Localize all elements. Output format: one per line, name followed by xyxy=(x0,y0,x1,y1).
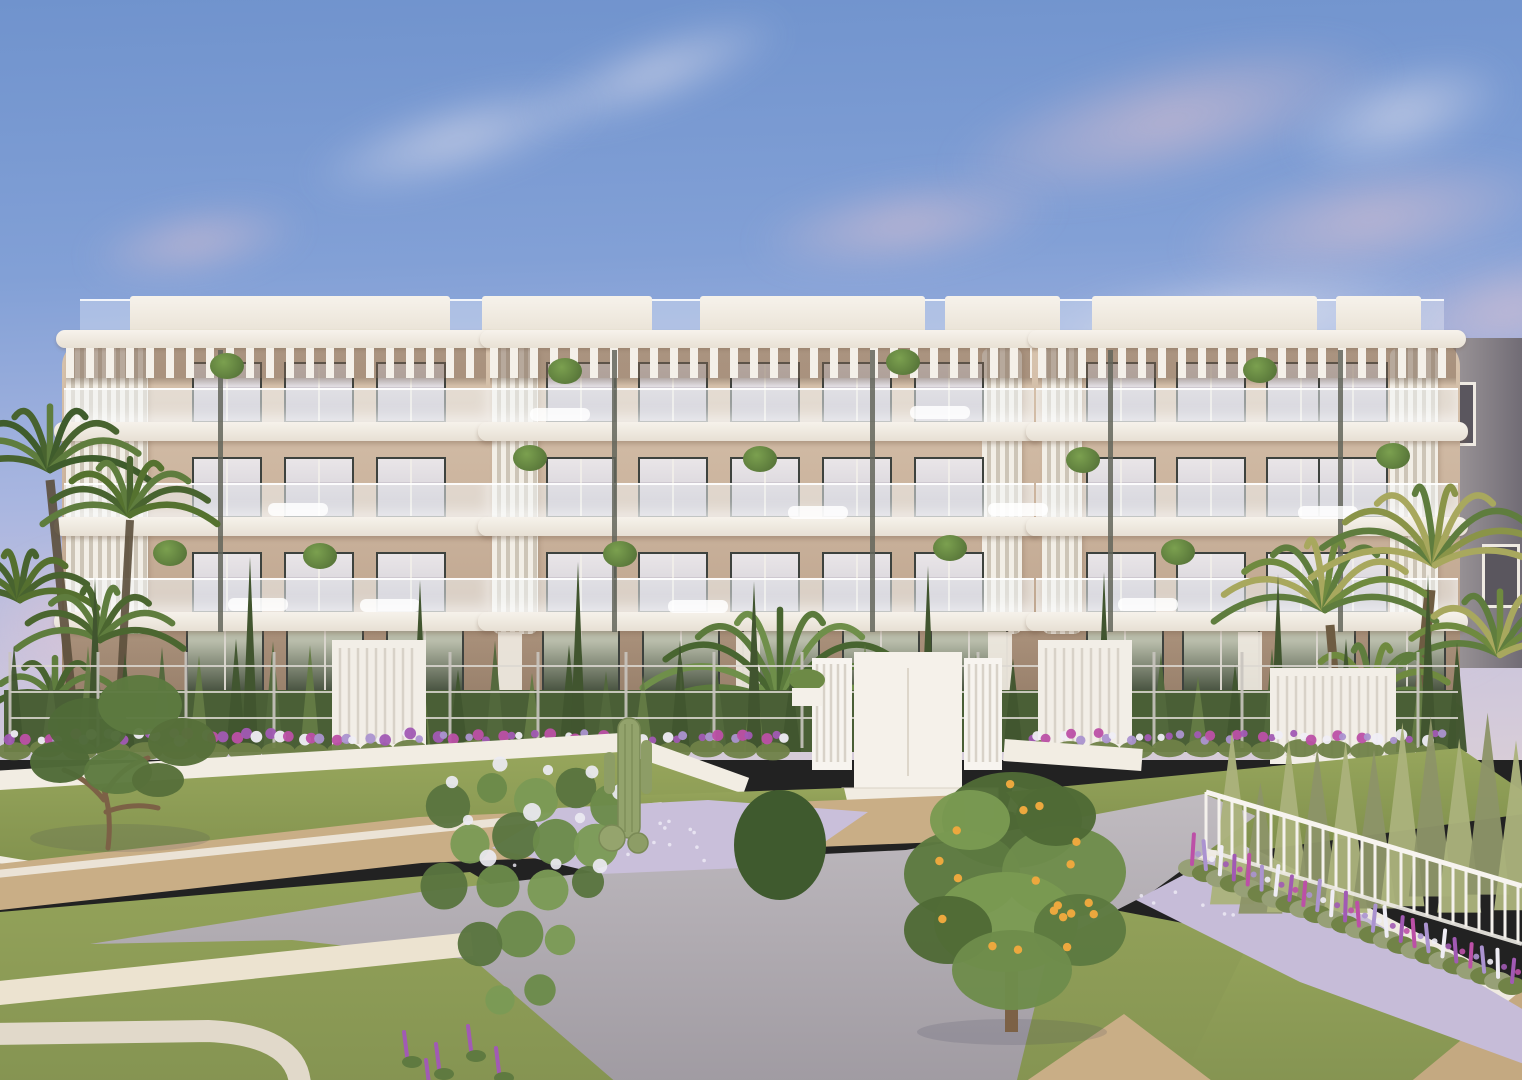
flower-cluster xyxy=(217,731,228,742)
bed-flower-dot xyxy=(1418,933,1424,939)
white-bush-foliage xyxy=(524,974,555,1005)
flower-foliage xyxy=(723,741,757,759)
flower-cluster xyxy=(779,733,789,743)
white-bush-foliage xyxy=(458,922,503,967)
citrus-fruit xyxy=(1085,899,1093,907)
bottom-flower-foliage xyxy=(434,1068,454,1080)
palm-frond-right xyxy=(1214,597,1325,622)
flower-cluster xyxy=(1094,728,1104,738)
bed-flower-dot xyxy=(1251,872,1257,878)
white-bush-flower xyxy=(446,776,458,788)
bed-flower-dot xyxy=(1501,964,1507,970)
bed-flower-spike xyxy=(1455,939,1457,961)
flower-cluster xyxy=(1258,732,1268,742)
bed-flower-spike xyxy=(1248,855,1250,884)
flower-foliage xyxy=(1251,742,1285,760)
white-bush-flower xyxy=(463,815,473,825)
bed-flower-spike xyxy=(1303,883,1305,906)
bed-flower-spike xyxy=(1413,920,1415,946)
flower-cluster xyxy=(440,731,448,739)
flower-cluster xyxy=(1339,733,1346,740)
flower-cluster xyxy=(712,730,723,741)
bed-flower-spike xyxy=(1426,925,1429,952)
bed-flower-spike xyxy=(1512,960,1514,982)
gate-planter-plant xyxy=(789,669,825,691)
flower-cluster xyxy=(473,729,484,740)
bed-flower-dot xyxy=(1473,954,1479,960)
flower-cluster xyxy=(1194,731,1201,738)
bed-flower-dot xyxy=(1320,897,1326,903)
flower-cluster xyxy=(1032,731,1042,741)
gravel-speckle xyxy=(692,831,696,835)
gravel-speckle xyxy=(688,828,692,832)
gravel-speckle xyxy=(667,820,671,824)
flower-cluster xyxy=(1323,735,1332,744)
gate-planter-box xyxy=(792,688,822,706)
gravel-speckle xyxy=(626,853,630,857)
left-tree-foliage xyxy=(148,718,216,766)
flower-cluster xyxy=(283,731,294,742)
palm-frond-left xyxy=(100,630,183,648)
flower-cluster xyxy=(531,730,539,738)
flower-cluster xyxy=(508,732,516,740)
white-bush-flower xyxy=(550,858,561,869)
flower-cluster xyxy=(20,734,31,745)
planter-wall-right xyxy=(1004,750,1142,760)
flower-cluster xyxy=(1127,735,1136,744)
tree-shadow xyxy=(30,824,210,852)
citrus-fruit xyxy=(1066,860,1074,868)
flower-cluster xyxy=(699,734,707,742)
flower-cluster xyxy=(1371,733,1383,745)
flower-cluster xyxy=(11,730,19,738)
citrus-fruit xyxy=(1035,802,1043,810)
bed-flower-spike xyxy=(1204,841,1206,869)
white-bush-foliage xyxy=(485,985,514,1014)
citrus-foliage xyxy=(1016,786,1096,846)
left-tree-foliage xyxy=(132,763,184,797)
bed-flower-dot xyxy=(1334,902,1340,908)
barrel-cactus xyxy=(628,833,648,853)
flower-foliage xyxy=(1152,739,1186,757)
bed-flower-spike xyxy=(1234,856,1235,880)
flower-cluster xyxy=(1076,736,1085,745)
flower-cluster xyxy=(314,733,324,743)
gravel-speckle xyxy=(663,826,667,830)
bed-flower-dot xyxy=(1195,851,1201,857)
gravel-speckle xyxy=(658,822,662,826)
bed-flower-spike xyxy=(1317,881,1320,911)
white-bush-foliage xyxy=(533,819,579,865)
bed-flower-spike xyxy=(1331,892,1332,916)
cactus-arm xyxy=(604,752,615,794)
citrus-fruit xyxy=(1063,943,1071,951)
flower-cluster xyxy=(1205,731,1215,741)
flower-cluster xyxy=(365,733,375,743)
flower-cluster xyxy=(404,728,416,740)
flower-cluster xyxy=(761,733,772,744)
flower-cluster xyxy=(1306,735,1317,746)
white-bush-foliage xyxy=(421,863,468,910)
bed-flower-spike xyxy=(1482,947,1484,971)
architectural-render-scene: New-build apartment complex with landsca… xyxy=(0,0,1522,1080)
gravel-speckle xyxy=(1152,901,1156,905)
citrus-foliage xyxy=(952,930,1072,1010)
citrus-fruit xyxy=(953,826,961,834)
white-bush-foliage xyxy=(477,865,520,908)
white-bush-foliage xyxy=(497,911,544,958)
flower-cluster xyxy=(465,733,473,741)
bed-flower-dot xyxy=(1362,913,1368,919)
bed-flower-dot xyxy=(1292,887,1298,893)
gravel-speckle xyxy=(1231,913,1235,917)
bed-flower-dot xyxy=(1223,861,1229,867)
bed-flower-spike xyxy=(1373,906,1376,931)
flower-cluster xyxy=(1157,734,1164,741)
left-tree-foliage xyxy=(30,741,90,783)
citrus-fruit xyxy=(938,915,946,923)
citrus-fruit xyxy=(954,874,962,882)
flower-cluster xyxy=(251,731,263,743)
flower-cluster xyxy=(1390,737,1397,744)
flower-cluster xyxy=(348,736,356,744)
citrus-fruit xyxy=(1090,910,1098,918)
bed-flower-spike xyxy=(1442,930,1445,956)
bottom-flower-foliage xyxy=(466,1050,486,1062)
saguaro-cactus xyxy=(618,718,640,838)
white-bush-flower xyxy=(523,803,541,821)
gravel-speckle xyxy=(1201,903,1205,907)
flower-cluster xyxy=(1166,732,1173,739)
bed-flower-dot xyxy=(1390,923,1396,929)
white-bush-flower xyxy=(543,765,553,775)
white-bush-flower xyxy=(492,756,507,771)
gravel-speckle xyxy=(695,845,699,849)
flower-cluster xyxy=(1144,734,1151,741)
citrus-fruit xyxy=(935,857,943,865)
gravel-speckle xyxy=(1174,890,1178,894)
gravel-speckle xyxy=(513,863,517,867)
bed-flower-dot xyxy=(1306,892,1312,898)
white-bush-foliage xyxy=(477,773,507,803)
flower-cluster xyxy=(1232,730,1242,740)
barrel-cactus xyxy=(599,825,625,851)
flower-cluster xyxy=(515,732,522,739)
tall-cypress xyxy=(570,562,586,752)
citrus-fruit xyxy=(1067,909,1075,917)
flower-cluster xyxy=(415,735,423,743)
palm-frond-right xyxy=(1325,597,1436,622)
flower-foliage xyxy=(756,742,790,760)
white-bush-foliage xyxy=(528,870,569,911)
white-bush-flower xyxy=(479,849,496,866)
white-bush-foliage xyxy=(545,925,575,955)
palm-frond-left xyxy=(130,505,217,524)
garden-foreground xyxy=(0,0,1522,1080)
palm-frond-left xyxy=(17,630,100,648)
bed-flower-dot xyxy=(1376,918,1382,924)
flower-cluster xyxy=(1290,730,1297,737)
flower-cluster xyxy=(38,737,46,745)
bed-flower-dot xyxy=(1209,856,1215,862)
citrus-foliage xyxy=(930,790,1010,850)
citrus-fruit xyxy=(1050,907,1058,915)
bed-flower-dot xyxy=(1487,959,1493,965)
center-palm-base xyxy=(734,790,826,900)
gravel-speckle xyxy=(652,841,656,845)
flower-cluster xyxy=(1066,729,1076,739)
citrus-fruit xyxy=(1014,946,1022,954)
bottom-flower-foliage xyxy=(402,1056,422,1068)
white-bush-flower xyxy=(586,766,599,779)
flower-cluster xyxy=(379,734,391,746)
flower-cluster xyxy=(1406,736,1413,743)
bed-flower-dot xyxy=(1265,877,1271,883)
tall-cypress xyxy=(242,557,258,752)
white-bush-flower xyxy=(575,813,585,823)
bed-flower-spike xyxy=(1220,847,1222,874)
flower-cluster xyxy=(448,733,459,744)
flower-cluster xyxy=(241,728,252,739)
bed-flower-spike xyxy=(1401,917,1403,941)
bed-flower-spike xyxy=(1385,907,1387,936)
bed-flower-spike xyxy=(1470,944,1471,966)
citrus-fruit xyxy=(1032,876,1040,884)
flower-cluster xyxy=(1274,731,1283,740)
flower-cluster xyxy=(1136,734,1143,741)
flower-cluster xyxy=(1240,730,1247,737)
citrus-fruit xyxy=(1059,913,1067,921)
bed-flower-dot xyxy=(1404,928,1410,934)
cactus-arm xyxy=(641,740,652,794)
flower-cluster xyxy=(1176,730,1184,738)
gravel-speckle xyxy=(1140,894,1144,898)
citrus-fruit xyxy=(988,942,996,950)
bed-flower-dot xyxy=(1278,882,1284,888)
flower-cluster xyxy=(1364,733,1371,740)
gravel-speckle xyxy=(668,843,672,847)
bed-flower-spike xyxy=(1289,877,1292,900)
flower-cluster xyxy=(744,731,752,739)
white-bush-flower xyxy=(593,859,608,874)
gravel-speckle xyxy=(1223,912,1227,916)
bed-flower-spike xyxy=(1357,903,1359,926)
flower-cluster xyxy=(1109,732,1116,739)
flower-cluster xyxy=(332,735,343,746)
bed-flower-dot xyxy=(1445,943,1451,949)
flower-cluster xyxy=(1438,729,1447,738)
bed-flower-dot xyxy=(1515,969,1521,975)
bed-flower-dot xyxy=(1237,866,1243,872)
citrus-fruit xyxy=(1006,780,1014,788)
flower-cluster xyxy=(663,732,674,743)
flower-foliage xyxy=(690,739,724,757)
bed-flower-spike xyxy=(1345,893,1346,921)
bed-flower-dot xyxy=(1348,907,1354,913)
flower-cluster xyxy=(678,731,687,740)
bed-flower-dot xyxy=(1459,948,1465,954)
bed-flower-dot xyxy=(1432,938,1438,944)
citrus-fruit xyxy=(1019,806,1027,814)
gravel-speckle xyxy=(702,859,706,863)
bed-flower-spike xyxy=(1192,834,1194,864)
bed-flower-spike xyxy=(1497,950,1498,977)
citrus-fruit xyxy=(1072,838,1080,846)
